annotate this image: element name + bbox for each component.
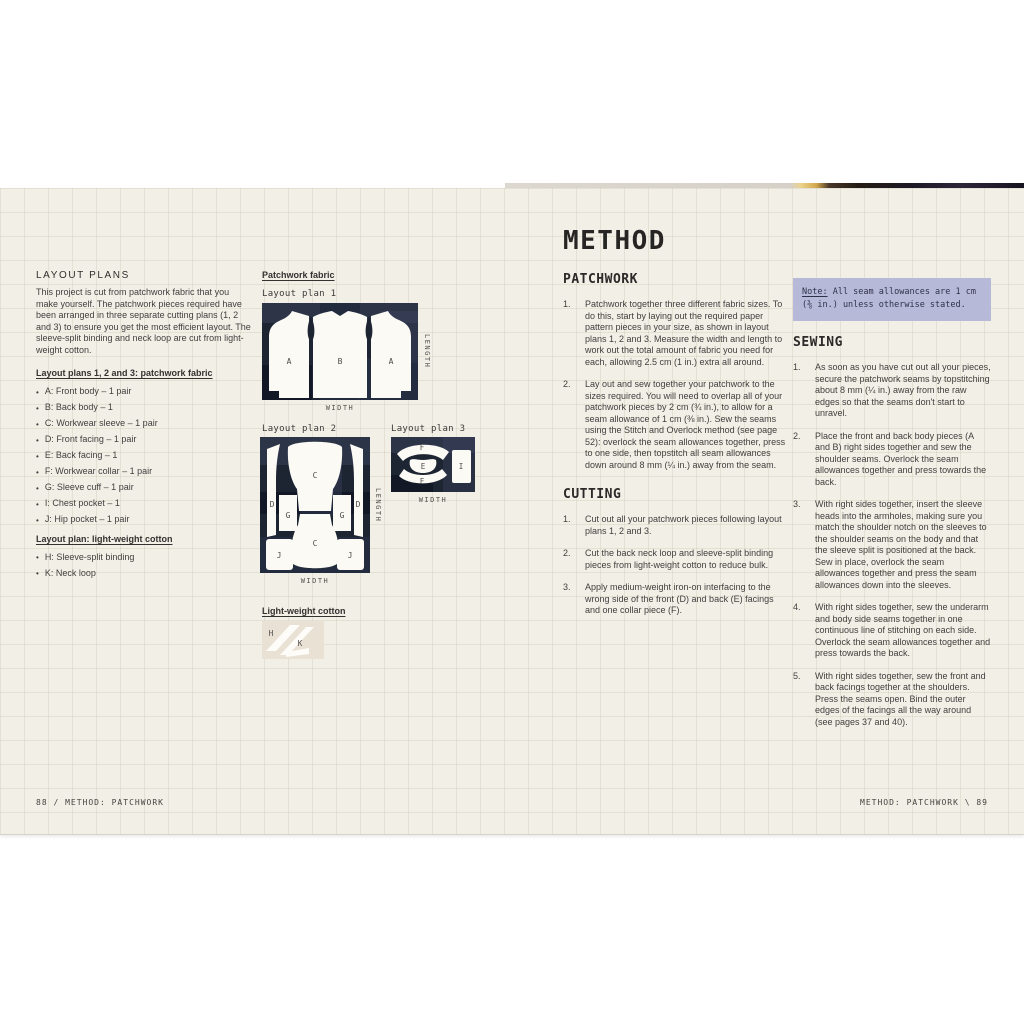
note-text: All seam allowances are 1 cm (⅜ in.) unl… (802, 287, 976, 310)
width-axis-label: WIDTH (260, 577, 370, 585)
piece-label: F (420, 443, 425, 452)
book-spread-photo: { "left_page": { "section_title": "LAYOU… (0, 0, 1024, 1024)
step-item: 2. Place the front and back body pieces … (793, 431, 991, 489)
step-item: 3. With right sides together, insert the… (793, 499, 991, 591)
patchwork-list-heading: Layout plans 1, 2 and 3: patchwork fabri… (36, 368, 252, 378)
width-axis-label: WIDTH (262, 404, 418, 412)
step-text: Patchwork together three different fabri… (585, 299, 787, 368)
step-text: Apply medium-weight iron-on interfacing … (585, 582, 787, 617)
lightweight-piece-list: H: Sleeve-split binding K: Neck loop (36, 552, 252, 580)
piece-a-right-shape (371, 311, 411, 398)
cutting-heading: CUTTING (563, 487, 787, 502)
note-box: Note: All seam allowances are 1 cm (⅜ in… (793, 278, 991, 321)
list-item-label: C: Workwear sleeve – 1 pair (45, 418, 158, 430)
layout-plans-column: LAYOUT PLANS This project is cut from pa… (36, 270, 252, 584)
patchwork-steps: 1. Patchwork together three different fa… (563, 299, 787, 471)
list-item: B: Back body – 1 (36, 402, 252, 414)
step-item: 4. With right sides together, sew the un… (793, 602, 991, 660)
piece-a-left-shape (269, 311, 309, 398)
step-number: 1. (793, 362, 815, 420)
step-text: Lay out and sew together your patchwork … (585, 379, 787, 471)
list-item-label: J: Hip pocket – 1 pair (45, 514, 130, 526)
list-item-label: G: Sleeve cuff – 1 pair (45, 482, 134, 494)
layout-plan-2-diagram: D C D G G J C J (260, 437, 370, 573)
list-item-label: D: Front facing – 1 pair (45, 434, 137, 446)
list-item-label: B: Back body – 1 (45, 402, 113, 414)
step-text: Cut the back neck loop and sleeve-split … (585, 548, 787, 571)
lightweight-list-heading: Layout plan: light-weight cotton (36, 534, 252, 544)
layout-plan-1-label: Layout plan 1 (262, 289, 336, 299)
step-number: 4. (793, 602, 815, 660)
list-item: G: Sleeve cuff – 1 pair (36, 482, 252, 494)
piece-label: J (277, 551, 282, 560)
step-text: Place the front and back body pieces (A … (815, 431, 991, 489)
list-item: H: Sleeve-split binding (36, 552, 252, 564)
note-label: Note: (802, 287, 828, 297)
method-column: METHOD PATCHWORK 1. Patchwork together t… (563, 226, 787, 628)
patchwork-heading: PATCHWORK (563, 272, 787, 287)
step-item: 1. Patchwork together three different fa… (563, 299, 787, 368)
list-item: A: Front body – 1 pair (36, 386, 252, 398)
step-number: 2. (793, 431, 815, 489)
sewing-column: Note: All seam allowances are 1 cm (⅜ in… (793, 278, 991, 739)
step-text: With right sides together, sew the front… (815, 671, 991, 729)
list-item: K: Neck loop (36, 568, 252, 580)
step-text: Cut out all your patchwork pieces follow… (585, 514, 787, 537)
piece-label: E (421, 462, 426, 471)
section-title: LAYOUT PLANS (36, 270, 252, 281)
list-item-label: I: Chest pocket – 1 (45, 498, 120, 510)
length-axis-label: LENGTH (423, 303, 431, 400)
list-item: C: Workwear sleeve – 1 pair (36, 418, 252, 430)
piece-label: D (270, 500, 275, 509)
step-item: 2. Lay out and sew together your patchwo… (563, 379, 787, 471)
piece-label: K (298, 639, 303, 648)
list-item: I: Chest pocket – 1 (36, 498, 252, 510)
piece-label: C (313, 539, 318, 548)
piece-label: H (269, 629, 274, 638)
list-item: D: Front facing – 1 pair (36, 434, 252, 446)
lightweight-heading: Light-weight cotton (262, 606, 345, 616)
step-number: 2. (563, 548, 585, 571)
list-item-label: F: Workwear collar – 1 pair (45, 466, 152, 478)
diagram-column-heading: Patchwork fabric (262, 270, 335, 280)
layout-plan-3-diagram: F E F I (391, 437, 475, 492)
piece-label: G (286, 511, 291, 520)
list-item-label: K: Neck loop (45, 568, 96, 580)
step-number: 2. (563, 379, 585, 471)
piece-label: D (356, 500, 361, 509)
step-number: 3. (793, 499, 815, 591)
open-book-spread: LAYOUT PLANS This project is cut from pa… (0, 188, 1024, 835)
layout-plan-2-label: Layout plan 2 (262, 424, 336, 434)
piece-label: I (459, 462, 464, 471)
step-text: As soon as you have cut out all your pie… (815, 362, 991, 420)
step-item: 2. Cut the back neck loop and sleeve-spl… (563, 548, 787, 571)
step-text: With right sides together, sew the under… (815, 602, 991, 660)
intro-paragraph: This project is cut from patchwork fabri… (36, 287, 252, 356)
sewing-heading: SEWING (793, 335, 991, 350)
step-number: 3. (563, 582, 585, 617)
left-page-footer: 88 / METHOD: PATCHWORK (36, 798, 164, 807)
step-number: 1. (563, 299, 585, 368)
width-axis-label: WIDTH (391, 496, 475, 504)
step-item: 3. Apply medium-weight iron-on interfaci… (563, 582, 787, 617)
piece-label: C (313, 471, 318, 480)
right-page-footer: METHOD: PATCHWORK \ 89 (860, 798, 988, 807)
step-item: 5. With right sides together, sew the fr… (793, 671, 991, 729)
piece-label: B (338, 357, 343, 366)
step-item: 1. Cut out all your patchwork pieces fol… (563, 514, 787, 537)
list-item-label: H: Sleeve-split binding (45, 552, 135, 564)
piece-label: F (420, 477, 425, 486)
cutting-steps: 1. Cut out all your patchwork pieces fol… (563, 514, 787, 617)
step-number: 5. (793, 671, 815, 729)
sewing-steps: 1. As soon as you have cut out all your … (793, 362, 991, 728)
list-item-label: A: Front body – 1 pair (45, 386, 132, 398)
list-item: E: Back facing – 1 (36, 450, 252, 462)
patchwork-piece-list: A: Front body – 1 pair B: Back body – 1 … (36, 386, 252, 526)
lightweight-swatch-diagram: H K (262, 621, 324, 659)
layout-plan-1-diagram: A B A (262, 303, 418, 400)
length-axis-label: LENGTH (374, 437, 382, 573)
piece-label: J (348, 551, 353, 560)
layout-plan-3-label: Layout plan 3 (391, 424, 465, 434)
piece-b-shape (313, 311, 367, 398)
list-item: J: Hip pocket – 1 pair (36, 514, 252, 526)
list-item-label: E: Back facing – 1 (45, 450, 118, 462)
list-item: F: Workwear collar – 1 pair (36, 466, 252, 478)
step-number: 1. (563, 514, 585, 537)
step-text: With right sides together, insert the sl… (815, 499, 991, 591)
page-title: METHOD (563, 226, 787, 256)
piece-label: A (389, 357, 394, 366)
piece-label: G (340, 511, 345, 520)
step-item: 1. As soon as you have cut out all your … (793, 362, 991, 420)
piece-label: A (287, 357, 292, 366)
